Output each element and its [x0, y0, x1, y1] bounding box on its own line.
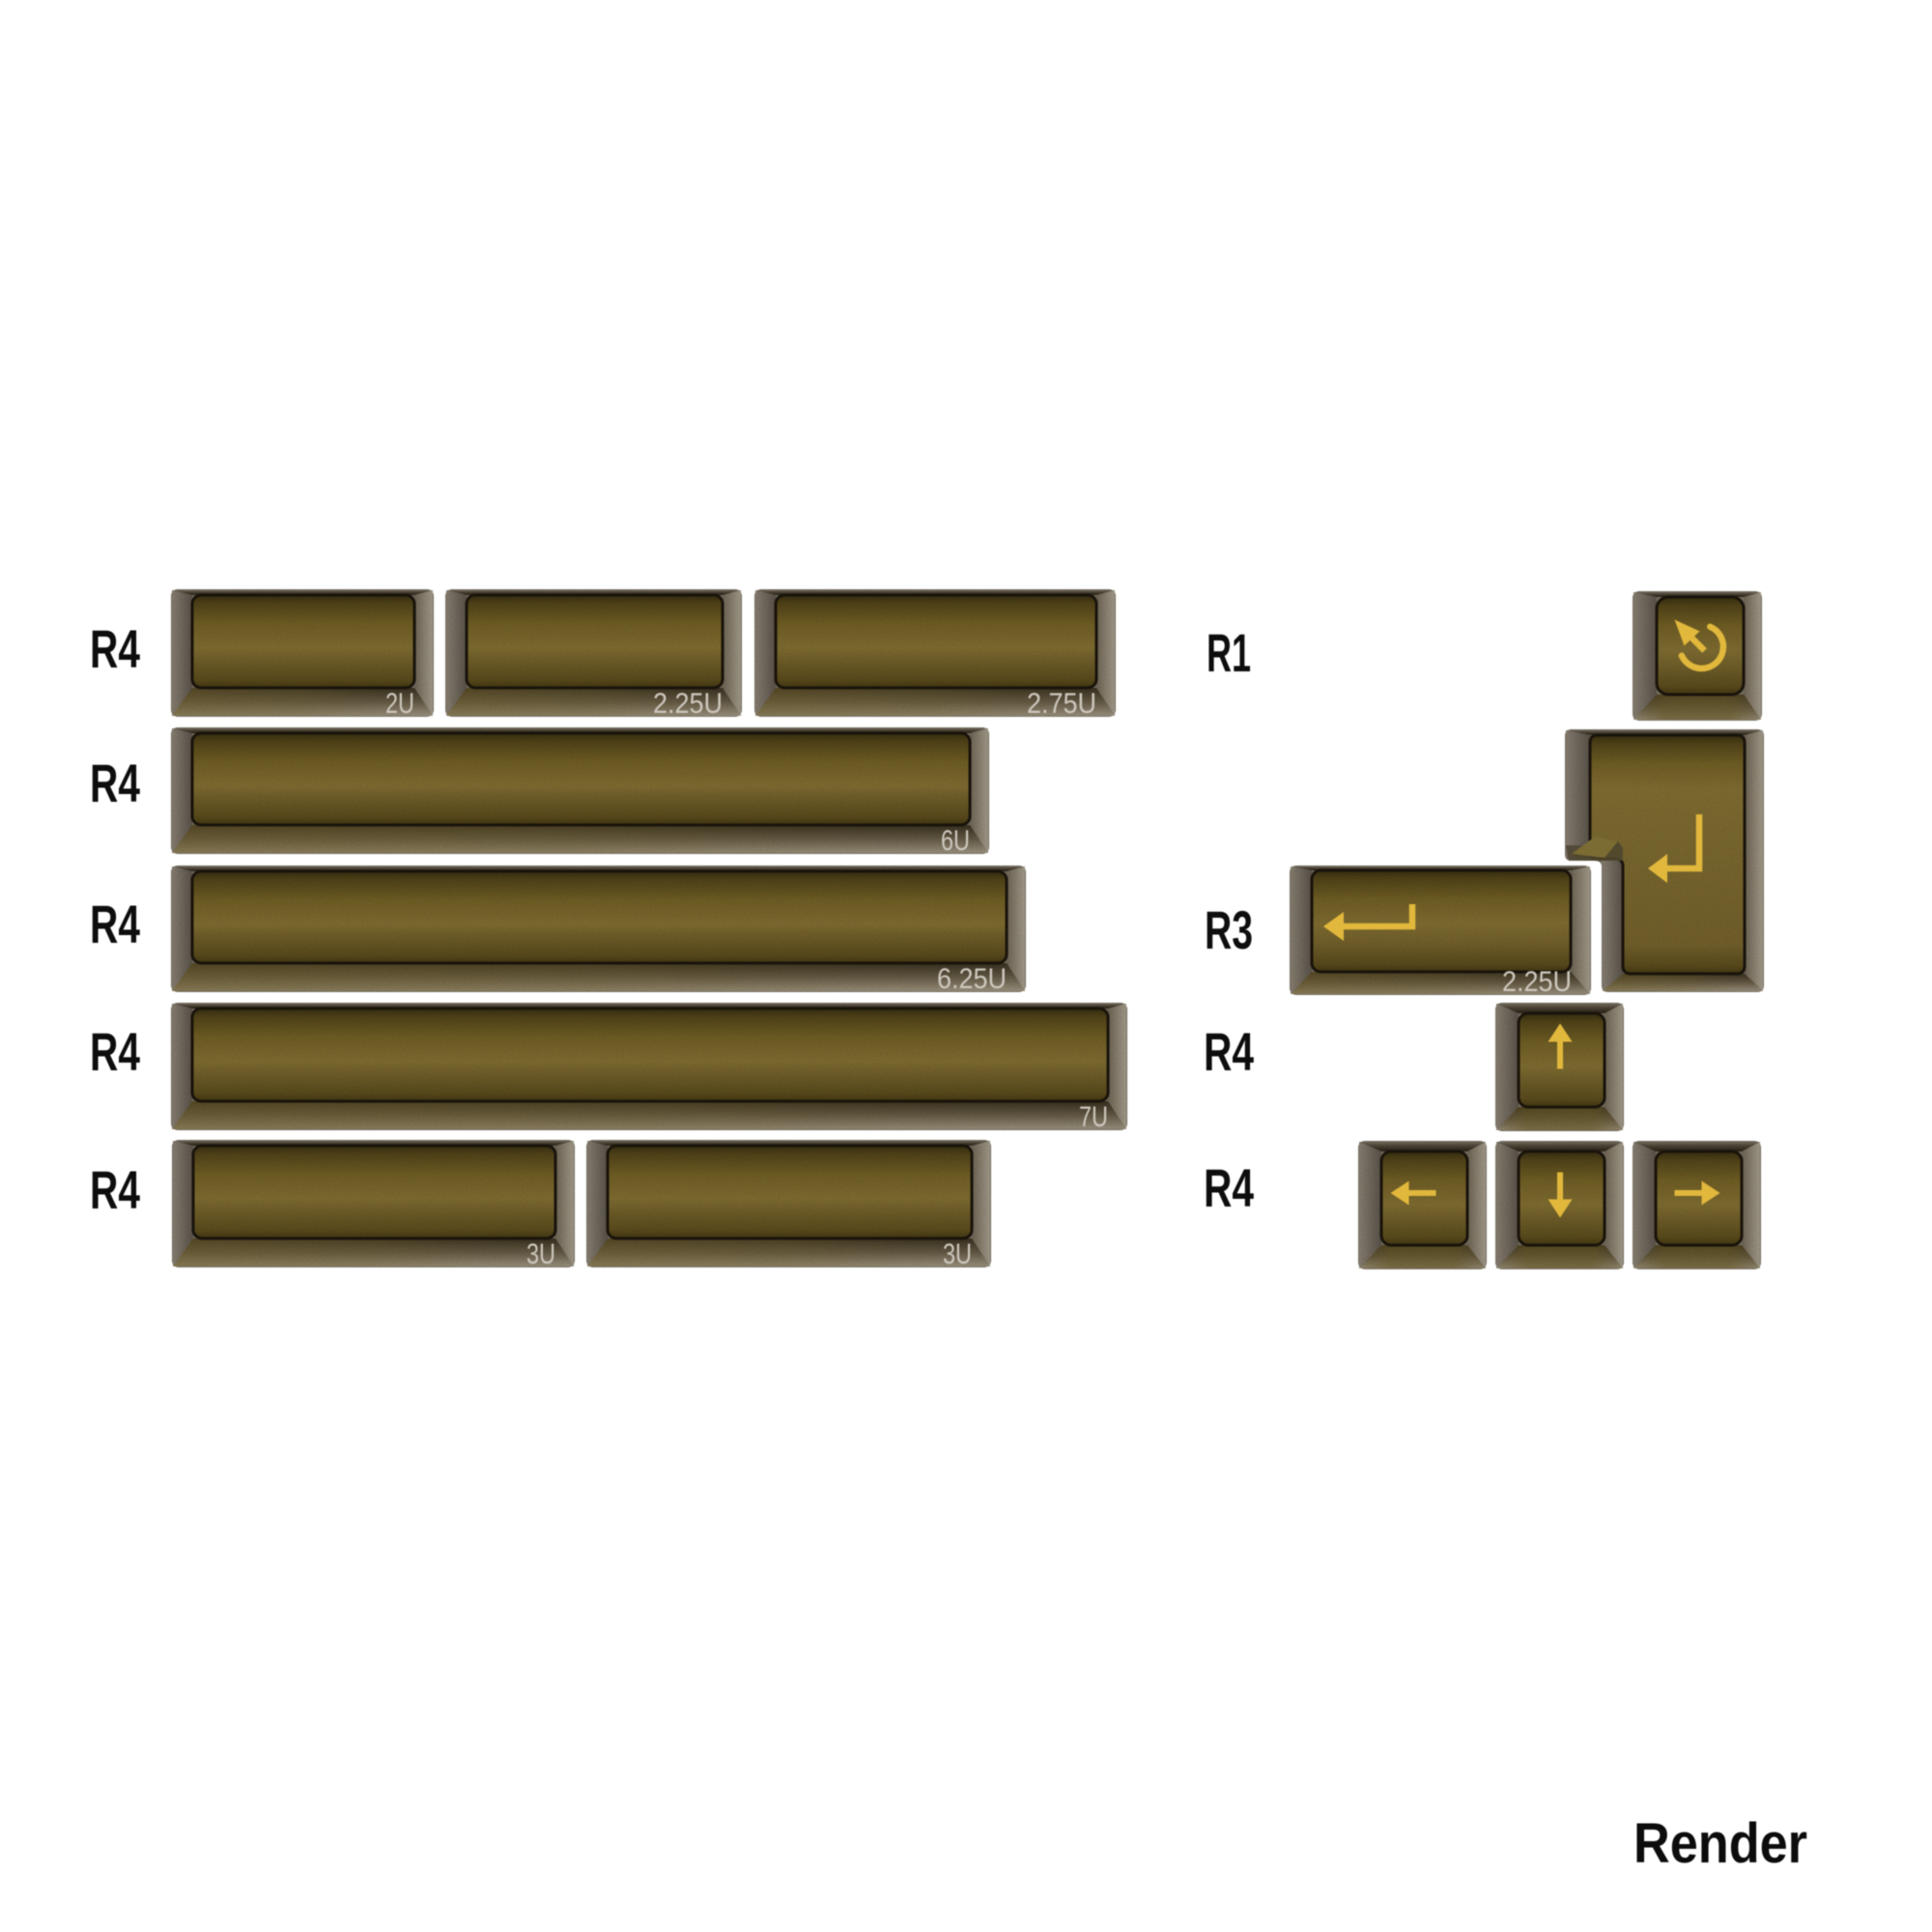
svg-text:Render: Render	[1634, 1812, 1807, 1875]
